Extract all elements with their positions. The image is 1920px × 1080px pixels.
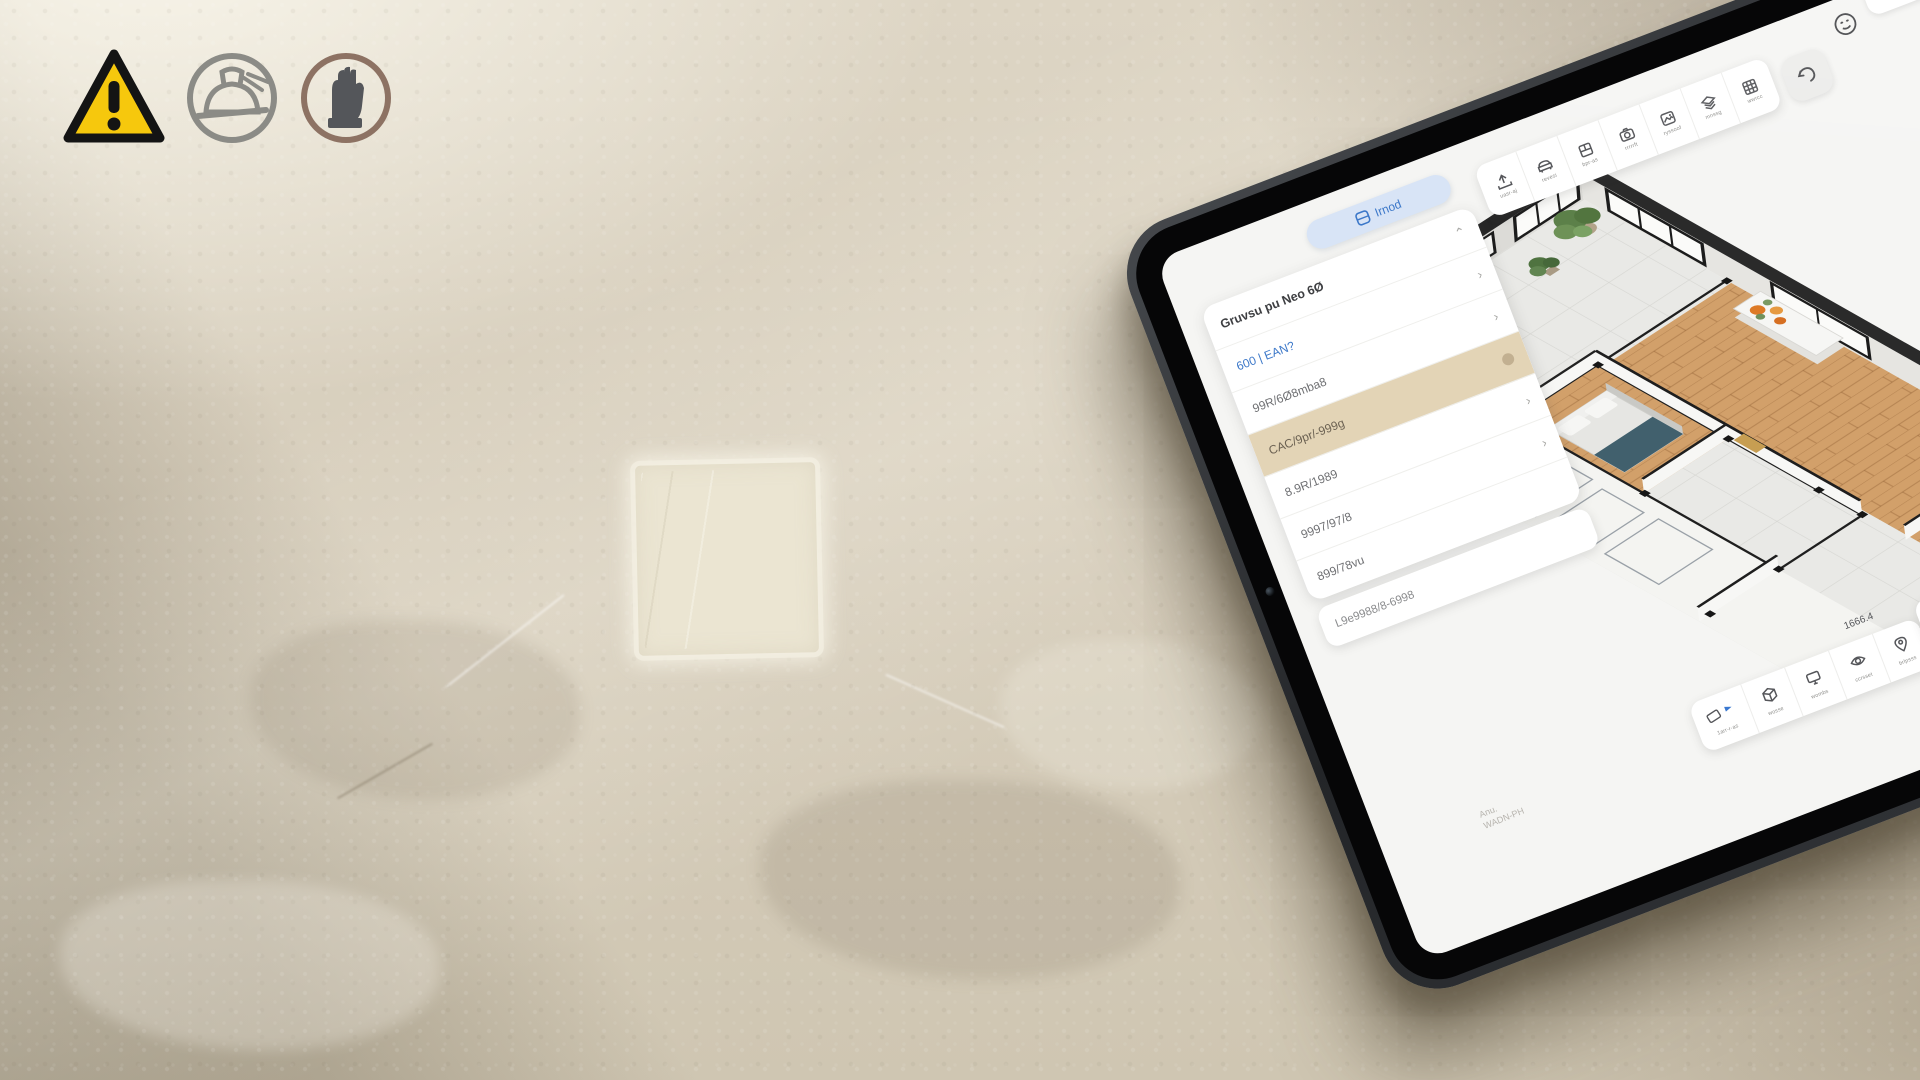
chevron-right-icon: ›	[1475, 266, 1484, 282]
layers-icon	[1698, 91, 1720, 113]
camera-icon	[1616, 123, 1638, 145]
chevron-right-icon: ›	[1523, 392, 1532, 408]
view-icon	[1354, 209, 1372, 227]
eye-icon	[1847, 650, 1870, 676]
cabinet-icon	[1575, 139, 1597, 161]
chevron-right-icon: ›	[1539, 434, 1548, 450]
pin-icon	[1892, 634, 1913, 659]
box-icon	[1759, 684, 1781, 709]
render-icon	[1657, 107, 1679, 129]
chevron-right-icon: ›	[1491, 308, 1500, 324]
collapse-caret-icon[interactable]: ⌃	[1452, 224, 1468, 243]
export-icon	[1493, 170, 1515, 192]
front-camera	[1264, 586, 1276, 598]
warning-triangle-icon	[62, 48, 166, 148]
sofa-icon	[1534, 154, 1556, 176]
paint-swatch-patch	[635, 462, 819, 656]
glove-icon	[298, 50, 394, 146]
view-tab-label: Irnod	[1373, 197, 1404, 220]
safety-pictograms	[62, 48, 394, 148]
status-dot-icon	[1500, 351, 1516, 367]
scene: Irnod uasr-aj revesi bpr-as	[0, 0, 1920, 1080]
grid-icon	[1739, 75, 1761, 97]
undo-icon	[1793, 61, 1821, 89]
hard-hat-icon	[184, 50, 280, 146]
display-icon	[1803, 667, 1825, 692]
